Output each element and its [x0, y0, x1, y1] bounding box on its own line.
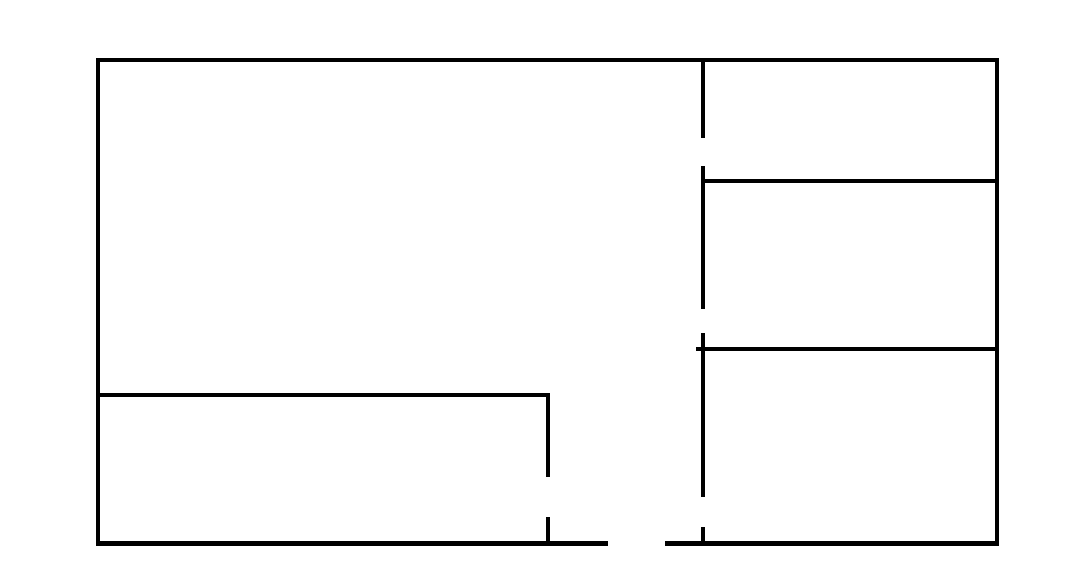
- wall-right-upper-horizontal: [703, 179, 995, 183]
- wall-divider-segment-2: [701, 166, 705, 309]
- wall-right-middle-horizontal: [696, 347, 995, 351]
- wall-interior-vertical-upper: [546, 393, 550, 477]
- wall-interior-vertical-lower: [546, 517, 550, 545]
- wall-divider-segment-4: [701, 527, 705, 545]
- wall-outer-top: [96, 58, 999, 62]
- wall-outer-right: [995, 58, 999, 545]
- wall-outer-bottom-right-segment: [665, 541, 999, 546]
- wall-outer-bottom-left-segment: [96, 541, 608, 546]
- wall-outer-left: [96, 58, 100, 545]
- wall-divider-segment-3: [701, 333, 705, 497]
- drawing-canvas: [0, 0, 1084, 575]
- wall-left-room-horizontal: [96, 393, 550, 397]
- wall-divider-segment-1: [701, 58, 705, 138]
- floor-plan: [0, 0, 1084, 575]
